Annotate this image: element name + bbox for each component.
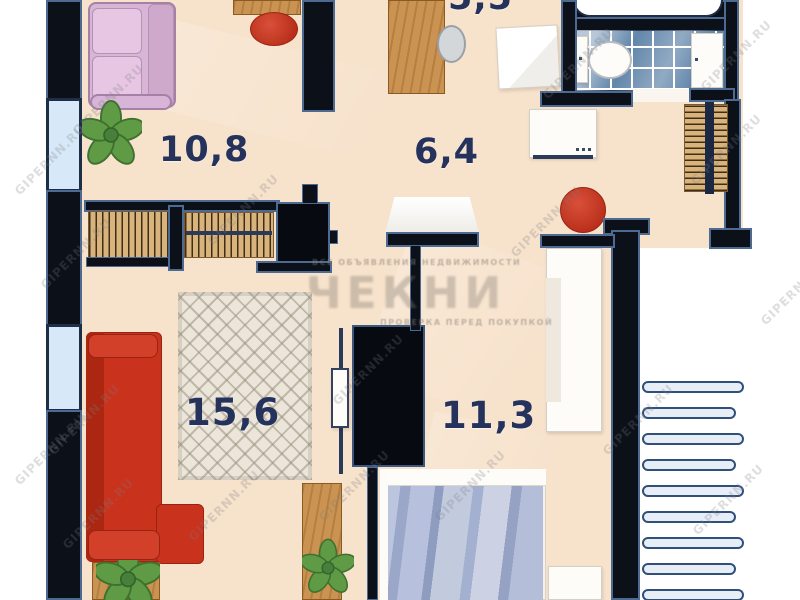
watermark-center-title: ЧЕКНИ: [306, 268, 506, 319]
wall-hall-bedroom: [540, 234, 615, 248]
nightstand: [548, 566, 602, 600]
watermark-text: GIPERNN.RU: [758, 251, 800, 328]
wall-end-cap: [709, 228, 752, 249]
washer-button: [582, 148, 585, 151]
bed-blanket: [383, 486, 543, 600]
wardrobe-door-shade: [546, 278, 561, 402]
stair-step: [642, 589, 744, 600]
wall-kitchen-room: [302, 0, 335, 112]
stair-step: [642, 537, 744, 549]
outer-wall-left: [46, 0, 82, 100]
washer-button: [588, 148, 591, 151]
potted-plant-icon: [302, 536, 354, 600]
bathroom-door-opening: [633, 89, 690, 102]
washer-button: [576, 148, 579, 151]
pink-sofa-backrest: [148, 4, 174, 106]
wall-hall-bedroom: [386, 232, 479, 247]
bathtub: [573, 0, 723, 17]
sink-tap: [695, 58, 698, 61]
washer-base-line: [533, 155, 593, 159]
room-label-kitchen: 5,5: [448, 0, 513, 18]
washing-machine: [529, 109, 597, 158]
room-label-living-room: 15,6: [185, 391, 280, 434]
cabinet-knob: [302, 184, 318, 204]
room-label-bedroom: 11,3: [441, 394, 536, 437]
room-label-top-left-room: 10,8: [159, 130, 249, 170]
stair-step: [642, 459, 736, 471]
watermark-center-bottom-line: ПРОВЕРКА ПЕРЕД ПОКУПКОЙ: [380, 318, 553, 327]
pink-sofa-cushion: [92, 8, 142, 54]
wardrobe-divider: [168, 205, 184, 271]
wardrobe-frame: [86, 257, 174, 267]
area-rug: [178, 292, 312, 480]
red-sofa-armrest: [88, 334, 158, 358]
hanger-rail: [705, 102, 714, 194]
window: [46, 324, 82, 412]
watermark-center-top-line: ВСЕ ОБЪЯВЛЕНИЯ НЕДВИЖИМОСТИ: [312, 258, 521, 267]
console-table: [385, 197, 479, 233]
bed-rail: [380, 469, 388, 600]
office-chair: [250, 12, 298, 46]
red-sofa-armrest: [88, 530, 160, 560]
cabinet-knob: [329, 230, 338, 244]
floor-plan: 5,5 10,8 6,4 15,6 11,3 ВСЕ ОБЪЯВЛЕНИЯ НЕ…: [0, 0, 800, 600]
stair-step: [642, 563, 736, 575]
potted-plant-icon: [96, 560, 160, 600]
kitchen-sink: [437, 25, 466, 63]
stair-step: [642, 433, 744, 445]
room-label-hallway: 6,4: [414, 132, 479, 172]
wall-living-bedroom: [367, 467, 378, 600]
